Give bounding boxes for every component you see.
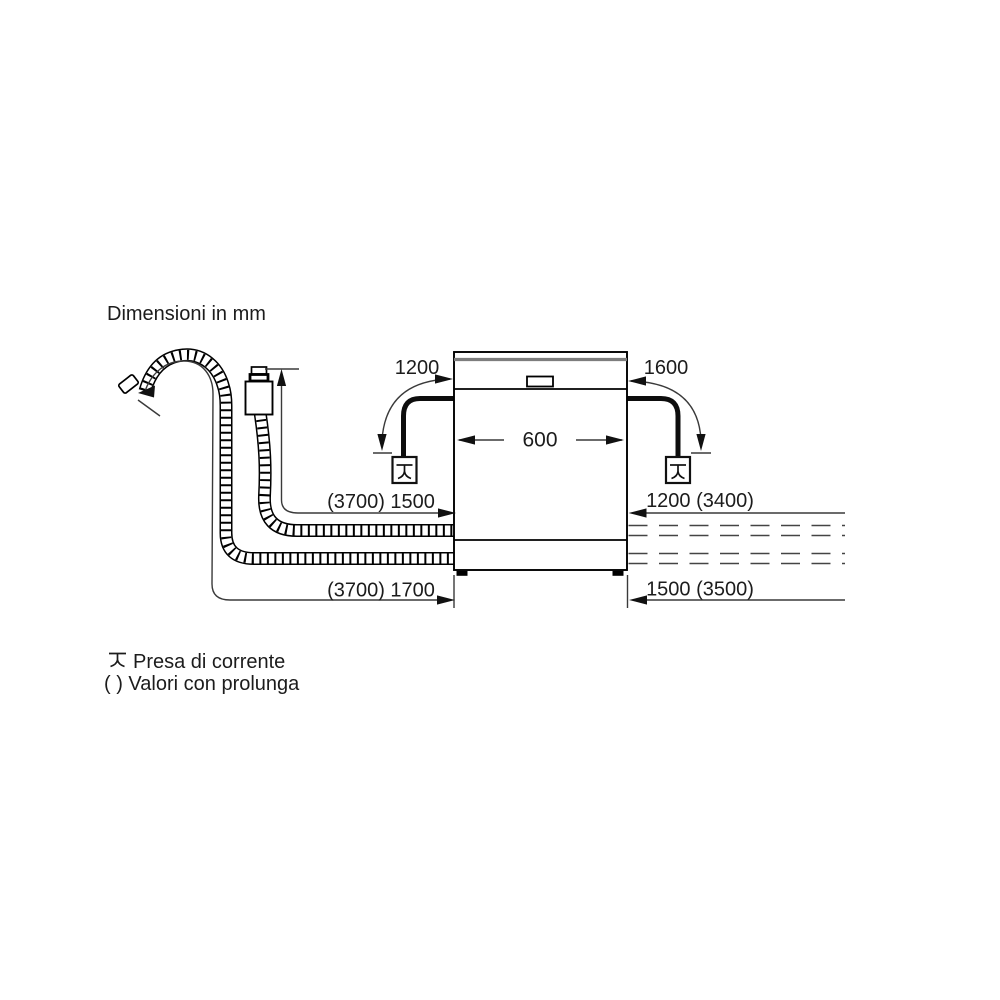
power-socket-right <box>666 457 690 483</box>
power-socket-icon <box>109 654 126 667</box>
dim-top-right-label: 1600 <box>644 357 689 379</box>
dim-right-upper-label: 1200 (3400) <box>646 490 754 512</box>
foot-right <box>613 571 624 576</box>
legend: Presa di corrente ( ) Valori con prolung… <box>104 651 300 695</box>
power-socket-left <box>393 457 417 483</box>
dim-top-right-line <box>631 381 701 440</box>
dim-width-label: 600 <box>522 429 557 452</box>
aquastop-nut <box>250 375 268 382</box>
power-cable-right <box>622 399 678 458</box>
dim-top-left-label: 1200 <box>395 357 440 379</box>
dishwasher <box>454 352 627 576</box>
diagram-svg: Dimensioni in mm 1200 1600 600 (3700) 15… <box>0 0 1000 1000</box>
door-handle <box>527 377 553 387</box>
legend-extension-label: ( ) Valori con prolunga <box>104 673 300 695</box>
installation-diagram: Dimensioni in mm 1200 1600 600 (3700) 15… <box>0 0 1000 1000</box>
diagram-title: Dimensioni in mm <box>107 303 266 325</box>
foot-left <box>457 571 468 576</box>
legend-socket-label: Presa di corrente <box>133 651 285 673</box>
power-cable-left <box>404 399 459 458</box>
dim-left-upper-label: (3700) 1500 <box>327 491 435 513</box>
dim-left-lower-label: (3700) 1700 <box>327 580 435 602</box>
aquastop-valve <box>246 367 273 415</box>
drain-hose-end-cap <box>118 374 139 394</box>
dim-drain-tangent <box>138 400 160 416</box>
extension-dashed-lines <box>629 526 846 564</box>
aquastop-body <box>246 382 273 415</box>
dim-right-lower-label: 1500 (3500) <box>646 579 754 601</box>
dim-top-left-line <box>382 379 450 440</box>
